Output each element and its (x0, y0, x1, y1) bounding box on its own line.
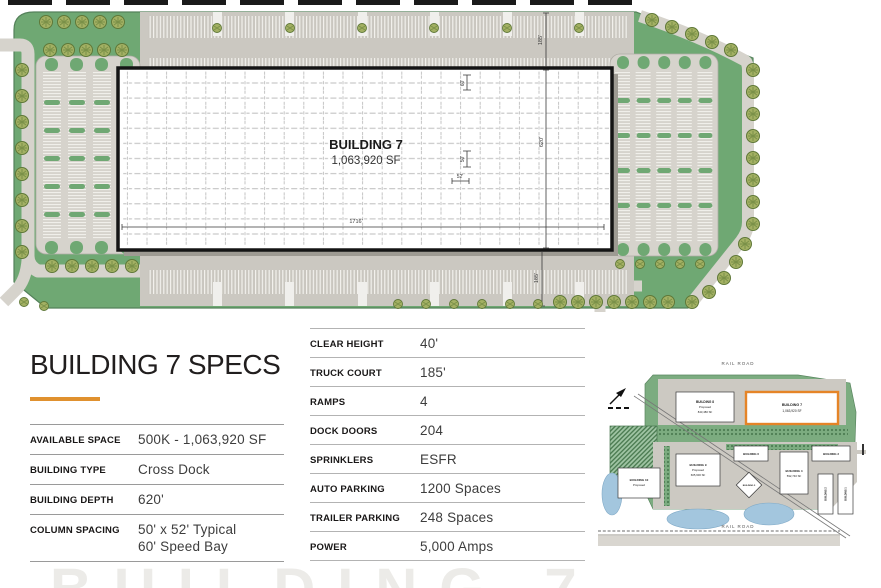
spec-row: TRUCK COURT 185' (310, 357, 585, 386)
svg-text:Proposed: Proposed (692, 468, 704, 472)
minimap-building-9: BUILDING 9 Proposed 605,600 SF (676, 454, 720, 486)
spec-value: 185' (420, 364, 446, 381)
minimap-building-10: BUILDING 10 Proposed (618, 468, 660, 498)
svg-text:843,480 SF: 843,480 SF (698, 410, 713, 414)
building-7-sf-label: 1,063,920 SF (331, 155, 400, 167)
minimap-building-8: BUILDING 8 Proposed 843,480 SF (676, 392, 734, 422)
dim-column-depth: 50' (460, 156, 466, 163)
svg-text:BUILDING 7: BUILDING 7 (782, 403, 802, 407)
spec-label: POWER (310, 538, 420, 555)
minimap-building-7: BUILDING 7 1,063,920 SF (746, 392, 838, 424)
svg-text:592,740 SF: 592,740 SF (787, 474, 802, 478)
minimap-tree-row (658, 428, 848, 437)
minimap-tree-row (664, 446, 670, 506)
page-title: BUILDING 7 SPECS (30, 350, 284, 381)
minimap-building-3: BUILDING 3 (812, 446, 850, 461)
spec-value-line1: 50' x 52' Typical (138, 521, 236, 538)
spec-value: 248 Spaces (420, 509, 493, 526)
spec-row: CLEAR HEIGHT 40' (310, 328, 585, 357)
svg-text:Proposed: Proposed (699, 405, 711, 409)
svg-text:BUILDING 9: BUILDING 9 (689, 463, 706, 467)
spec-label: BUILDING DEPTH (30, 491, 138, 508)
railroad-label-top: RAIL ROAD (721, 361, 754, 366)
svg-text:BUILDING 2: BUILDING 2 (825, 487, 828, 501)
spec-label: AUTO PARKING (310, 480, 420, 497)
minimap-building-1: BUILDING 1 (838, 474, 853, 514)
spec-label: AVAILABLE SPACE (30, 431, 138, 448)
dim-truck-court-top: 185' (538, 35, 544, 45)
location-minimap: RAIL ROAD RAIL ROAD BUILDING 8 Proposed … (598, 352, 881, 552)
property-line (8, 0, 632, 5)
svg-text:BUILDING 6: BUILDING 6 (743, 452, 759, 456)
svg-text:BUILDING 10: BUILDING 10 (630, 478, 649, 482)
title-underline (30, 397, 100, 401)
spec-row: AVAILABLE SPACE 500K - 1,063,920 SF (30, 424, 284, 454)
site-plan: BUILDING 7 1,063,920 SF 1716' 620' 185' … (0, 0, 881, 318)
dim-truck-court-bottom: 185' (534, 273, 540, 283)
spec-row: AUTO PARKING 1200 Spaces (310, 473, 585, 502)
spec-row: RAMPS 4 (310, 386, 585, 415)
spec-value: ESFR (420, 451, 457, 468)
dim-column-width: 52' (457, 174, 464, 180)
spec-value: 204 (420, 422, 443, 439)
spec-row: BUILDING DEPTH 620' (30, 484, 284, 514)
spec-label: DOCK DOORS (310, 422, 420, 439)
minimap-building-4: BUILDING 4 592,740 SF (780, 452, 808, 494)
svg-text:BUILDING 4: BUILDING 4 (785, 469, 802, 473)
spec-value: 50' x 52' Typical 60' Speed Bay (138, 521, 236, 555)
spec-row: TRAILER PARKING 248 Spaces (310, 502, 585, 531)
spec-value: 4 (420, 393, 428, 410)
spec-label: CLEAR HEIGHT (310, 335, 420, 352)
spec-label: SPRINKLERS (310, 451, 420, 468)
building-7-label: BUILDING 7 (329, 137, 403, 152)
svg-text:BUILDING 8: BUILDING 8 (696, 400, 714, 404)
spec-value: 5,000 Amps (420, 538, 493, 555)
spec-label: COLUMN SPACING (30, 521, 138, 555)
svg-text:Proposed: Proposed (633, 483, 645, 487)
spec-value: 500K - 1,063,920 SF (138, 431, 266, 448)
spec-label: BUILDING TYPE (30, 461, 138, 478)
minimap-access-road (854, 450, 866, 454)
spec-value: Cross Dock (138, 461, 210, 478)
spec-row: SPRINKLERS ESFR (310, 444, 585, 473)
svg-text:BUILDING 1: BUILDING 1 (845, 487, 848, 501)
dim-speed-bay: 60' (460, 80, 466, 87)
svg-text:1,063,920 SF: 1,063,920 SF (782, 409, 801, 413)
spec-label: TRUCK COURT (310, 364, 420, 381)
railroad-label-bottom: RAIL ROAD (721, 524, 754, 529)
minimap-building-6: BUILDING 6 (734, 446, 768, 461)
flyer-page: BUILDING 7 1,063,920 SF 1716' 620' 185' … (0, 0, 881, 588)
minimap-building-2: BUILDING 2 (818, 474, 833, 514)
svg-text:605,600 SF: 605,600 SF (691, 473, 706, 477)
spec-label: TRAILER PARKING (310, 509, 420, 526)
dim-depth: 620' (539, 137, 545, 147)
specs-section: BUILDING 7 SPECS AVAILABLE SPACE 500K - … (30, 350, 284, 562)
spec-row: COLUMN SPACING 50' x 52' Typical 60' Spe… (30, 514, 284, 562)
svg-text:BUILDING 5: BUILDING 5 (743, 485, 756, 487)
specs-table-right: CLEAR HEIGHT 40' TRUCK COURT 185' RAMPS … (310, 328, 585, 561)
spec-row: BUILDING TYPE Cross Dock (30, 454, 284, 484)
auto-parking-right (610, 54, 718, 256)
minimap-road-label (862, 444, 864, 455)
dim-width: 1716' (349, 219, 362, 225)
svg-text:BUILDING 3: BUILDING 3 (823, 452, 839, 456)
spec-value: 620' (138, 491, 164, 508)
watermark: BUILDING 7 (50, 556, 860, 588)
minimap-road-band (598, 534, 840, 546)
spec-value: 1200 Spaces (420, 480, 501, 497)
spec-value: 40' (420, 335, 438, 352)
specs-table-left: AVAILABLE SPACE 500K - 1,063,920 SF BUIL… (30, 424, 284, 562)
spec-value-line2: 60' Speed Bay (138, 538, 236, 555)
spec-row: DOCK DOORS 204 (310, 415, 585, 444)
spec-label: RAMPS (310, 393, 420, 410)
